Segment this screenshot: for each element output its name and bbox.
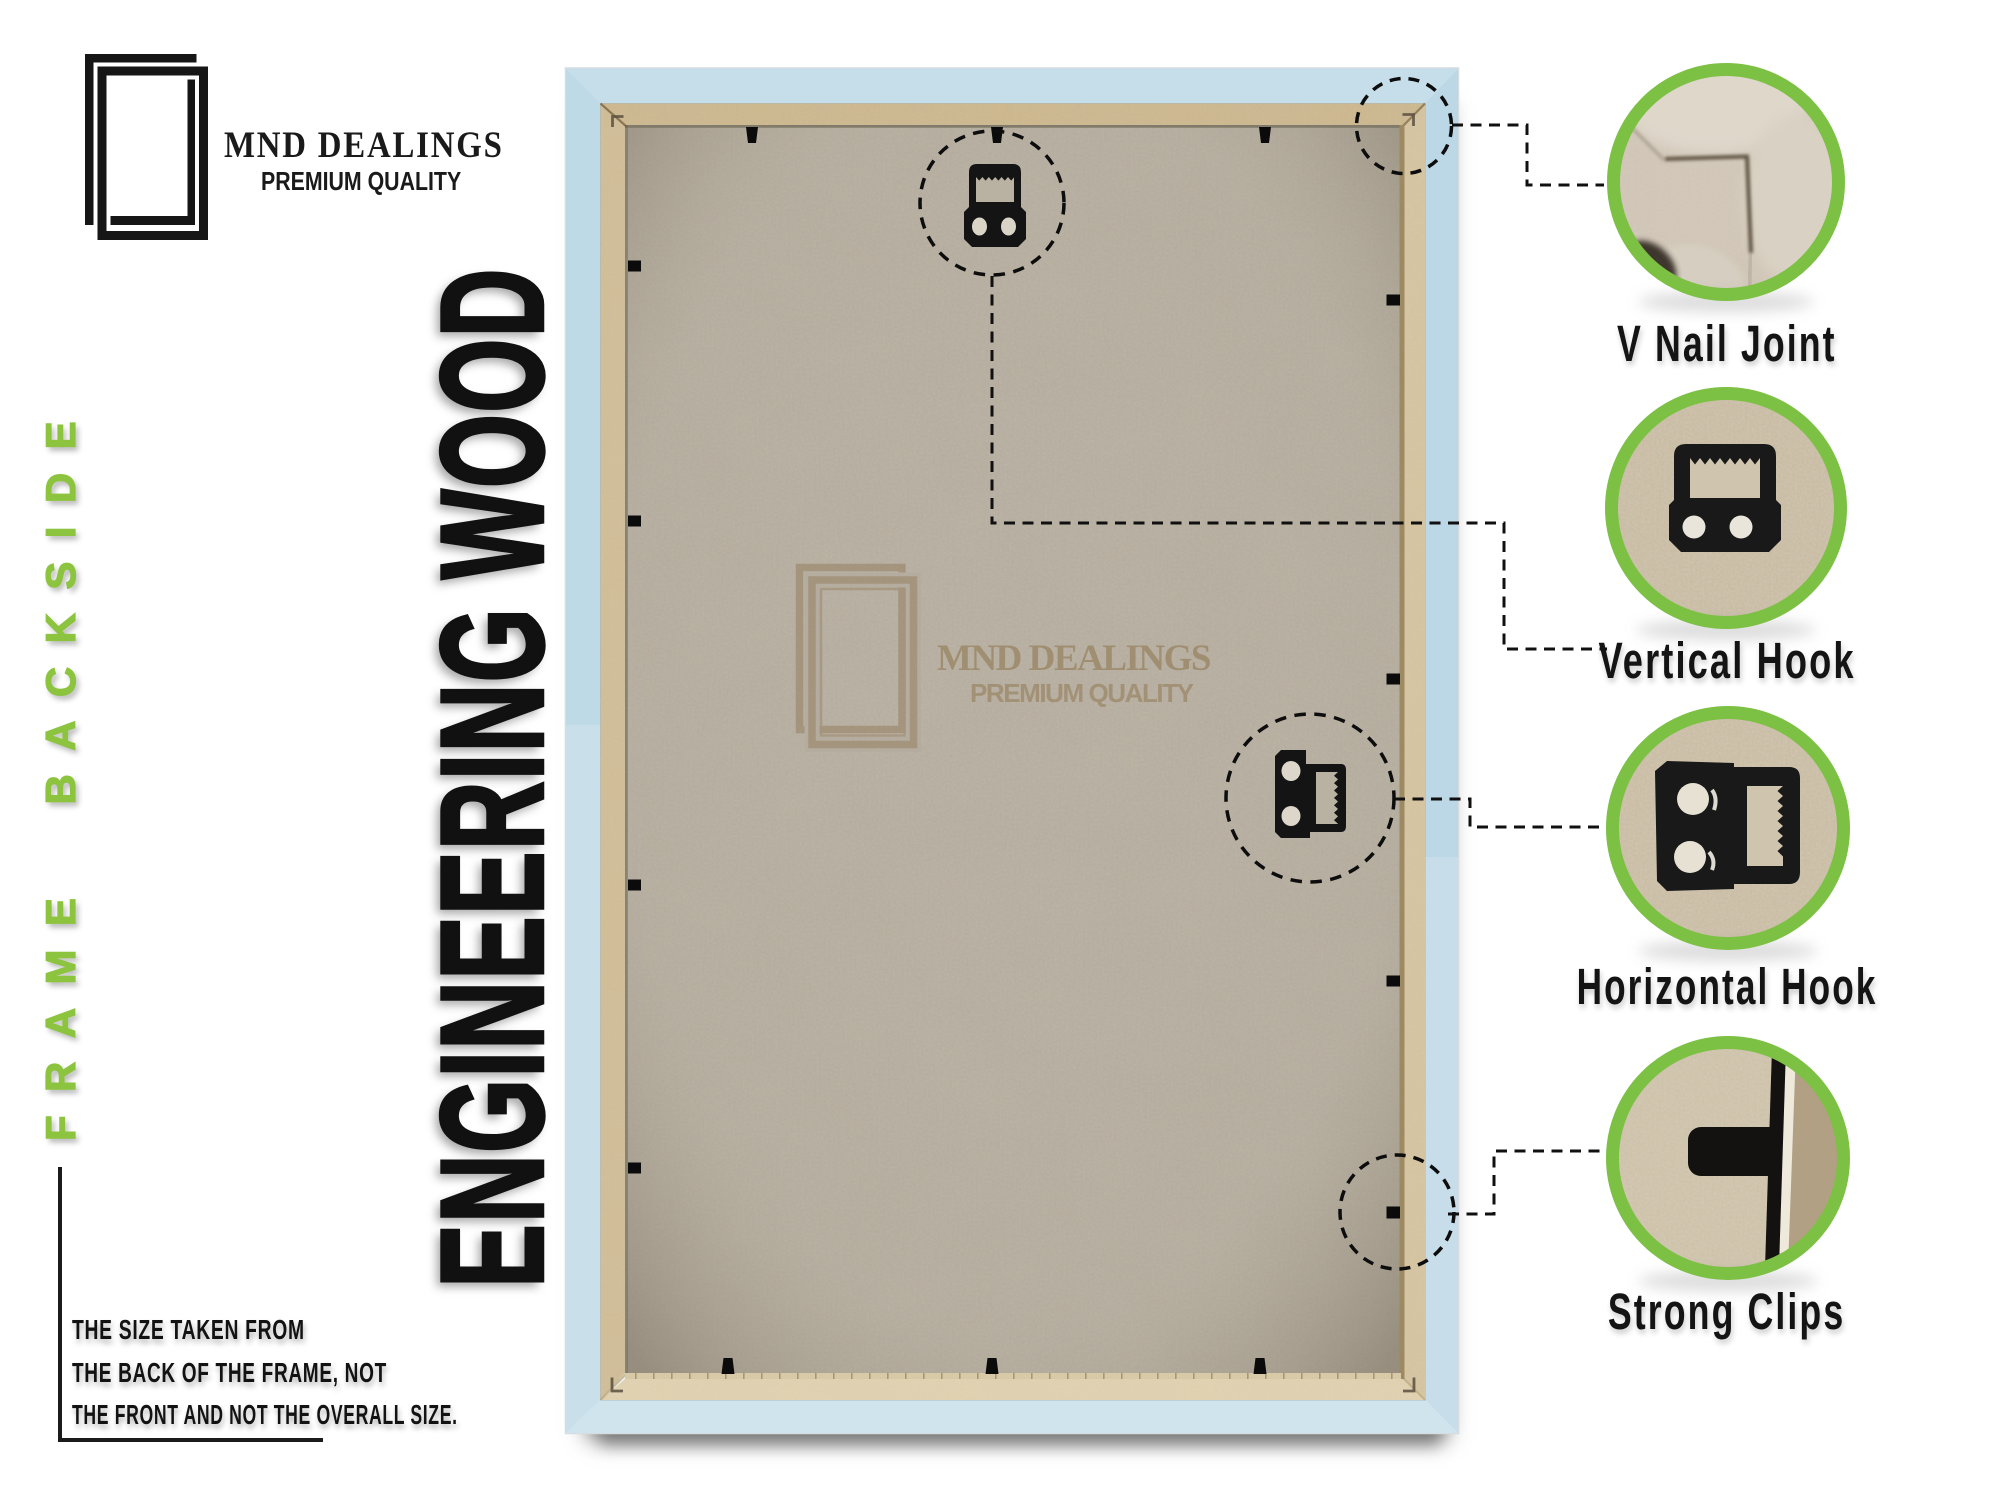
svg-text:MND DEALINGS: MND DEALINGS	[937, 638, 1215, 679]
svg-text:PREMIUM QUALITY: PREMIUM QUALITY	[970, 678, 1195, 708]
